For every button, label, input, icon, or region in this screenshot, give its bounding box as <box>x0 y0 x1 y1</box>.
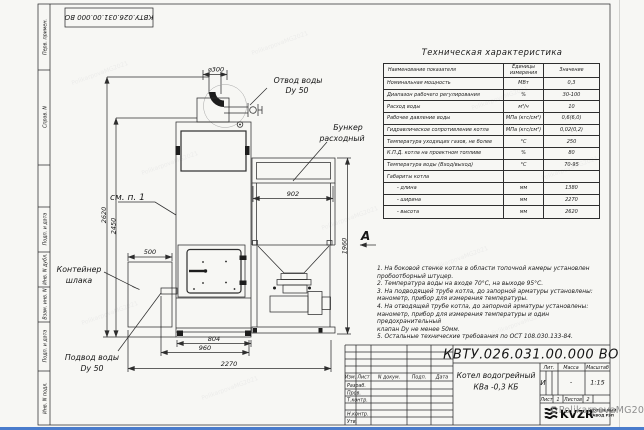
tb-product-name-2: КВа -0,3 КБ <box>474 383 519 392</box>
tech-cell-unit: МПа (кгс/см²) <box>504 113 544 125</box>
tech-cell-value: 30-100 <box>544 90 599 102</box>
door-hinge <box>240 281 247 286</box>
dimensions: ⌀300 500 902 1960 804 960 2270 2620 2450 <box>100 66 351 373</box>
stamp-label: Перв. примен. <box>43 19 49 55</box>
tech-cell-name: Рабочее давление воды <box>384 113 504 125</box>
feeder-motor <box>308 292 322 315</box>
tech-cell-name: - длина <box>384 183 504 195</box>
tb-scale-label: Масштаб <box>586 365 609 371</box>
stamp-label: Инв. N подл. <box>43 382 49 414</box>
tb-col-podp: Подп. <box>412 375 427 381</box>
tech-cell-name: Гидравлическое сопротивление котла <box>384 125 504 137</box>
stamp-label: Справ. N <box>43 106 49 128</box>
label-see-note: см. п. 1 <box>110 193 145 203</box>
border-stamp-column: Перв. примен. Справ. N Подп. и дата Инв.… <box>43 19 49 414</box>
label-water-inlet: Подвод воды <box>65 353 119 362</box>
note-line: пробоотборный штуцер. <box>377 274 609 282</box>
tech-col-header: Значение <box>544 64 599 78</box>
tech-cell-value: 0,02(0,2) <box>544 125 599 137</box>
dim-total-height: 2620 <box>100 207 108 224</box>
door-hinge <box>240 256 247 261</box>
dim-hopper-width: 902 <box>287 190 299 198</box>
chimney <box>107 77 262 128</box>
fuel-hopper <box>252 158 335 333</box>
tb-sheets-value: 2 <box>586 397 589 403</box>
tb-lit-label: Лит. <box>542 365 554 371</box>
tech-cell-value: 2270 <box>544 195 599 207</box>
note-line: 1. На боковой стенке котла в области топ… <box>377 266 609 274</box>
tb-doc-number: КВТУ.026.031.00.000 ВО <box>443 348 619 363</box>
dim-chimney: ⌀300 <box>208 66 224 74</box>
tech-cell-value: 250 <box>544 136 599 148</box>
page-edge-line <box>619 0 620 430</box>
tech-characteristics-table: Наименование показателя Единицы измерени… <box>383 63 600 219</box>
tb-sheet-label: Лист <box>539 397 552 403</box>
water-inlet-stub <box>161 288 177 294</box>
dim-hopper-height: 1960 <box>341 238 349 255</box>
tb-sheet-value: 1 <box>556 397 559 403</box>
tech-cell-unit: МПа (кгс/см²) <box>504 125 544 137</box>
note-line: 2. Температура воды на входе 70°С, на вы… <box>377 281 609 289</box>
note-line: 4. На отводящей трубе котла, до запорной… <box>377 304 609 312</box>
tb-col-izm: Изм. <box>345 375 356 381</box>
tb-row-utv: Утв. <box>347 419 357 425</box>
tb-row-prov: Пров. <box>347 391 361 397</box>
tech-cell-name: Температура воды (Вход/выход) <box>384 160 504 172</box>
tech-cell-name: Номинальная мощность <box>384 78 504 90</box>
label-water-inlet-dy: Dy 50 <box>80 364 103 373</box>
note-line: манометр, прибор для измерения температу… <box>377 312 609 327</box>
flue-elbow <box>209 92 224 107</box>
dim-boiler-width: 804 <box>208 335 220 343</box>
tb-mass-label: Масса <box>563 365 578 371</box>
tb-col-data: Дата <box>435 375 448 381</box>
stamp-label: Взам. инв. N <box>43 288 49 320</box>
note-line: 3. На подводящей трубе котла, до запорно… <box>377 289 609 297</box>
boiler-front-view <box>107 77 335 337</box>
view-a-label: А <box>360 229 370 243</box>
tech-cell-unit: мм <box>504 206 544 218</box>
label-hopper: Бункер <box>333 123 363 132</box>
tb-sheets-label: Листов <box>563 397 582 403</box>
slag-container <box>128 262 172 327</box>
tech-cell-unit: % <box>504 148 544 160</box>
tb-col-list: Лист <box>356 375 369 381</box>
furnace-door <box>178 245 247 297</box>
tech-cell-unit <box>504 171 544 183</box>
note-line: манометр, прибор для измерения температу… <box>377 296 609 304</box>
tech-cell-name: - ширина <box>384 195 504 207</box>
tech-cell-unit: °С <box>504 160 544 172</box>
tb-row-razrab: Разраб. <box>347 383 366 389</box>
tech-cell-unit: °С <box>504 136 544 148</box>
tech-col-header: Наименование показателя <box>384 64 504 78</box>
tb-row-tkontr: Т.контр. <box>347 398 368 404</box>
outlet-valve-icon <box>250 107 257 114</box>
label-water-outlet-dy: Dy 50 <box>285 86 308 95</box>
tech-cell-value: 0,3 <box>544 78 599 90</box>
stamp-label: Инв. N дубл. <box>43 253 49 284</box>
label-hopper-2: расходный <box>318 134 364 143</box>
tech-cell-name: К.П.Д. котла на проектном топливе <box>384 148 504 160</box>
tb-mass-value: - <box>570 379 573 387</box>
tech-cell-value: 2620 <box>544 206 599 218</box>
tech-cell-name: - высота <box>384 206 504 218</box>
tech-cell-name: Габариты котла <box>384 171 504 183</box>
tb-product-name: Котел водогрейный <box>457 371 536 380</box>
stamp-label: Подп. и дата <box>43 213 49 246</box>
tb-col-ndocum: N докум. <box>378 375 400 381</box>
tb-lit-value: И <box>540 379 546 387</box>
dim-base-width: 960 <box>199 344 211 352</box>
screw-feeder <box>270 296 308 312</box>
top-doc-number-box: КВТУ.026.031.00.000 ВО <box>64 8 153 27</box>
top-doc-number: КВТУ.026.031.00.000 ВО <box>64 13 153 21</box>
tech-cell-unit: м³/ч <box>504 101 544 113</box>
hopper-funnel <box>258 246 329 273</box>
blueprint-sheet: { "colors": { "bottom_bar": "#4a7ccc", "… <box>0 0 644 430</box>
tech-cell-unit: мм <box>504 183 544 195</box>
tech-cell-name: Температура уходящих газов, не более <box>384 136 504 148</box>
tech-cell-value: 0,6(6,0) <box>544 113 599 125</box>
tech-cell-value: 1380 <box>544 183 599 195</box>
label-slag-container-2: шлака <box>66 276 93 285</box>
dim-body-height: 2450 <box>110 218 118 235</box>
label-water-outlet: Отвод воды <box>274 76 323 85</box>
dim-slag-width: 500 <box>144 248 156 256</box>
tech-table-title: Техническая характеристика <box>392 47 592 57</box>
tech-cell-unit: мм <box>504 195 544 207</box>
tech-cell-value: 10 <box>544 101 599 113</box>
dim-total-width: 2270 <box>221 360 238 368</box>
tb-row-nkontr: Н.контр. <box>347 412 368 418</box>
boiler-body <box>161 122 251 337</box>
copyright-watermark: ©PolikarpovaMG2021 <box>549 405 644 416</box>
tb-scale-value: 1:15 <box>590 379 605 387</box>
tech-col-header: Единицы измерения <box>504 64 544 78</box>
stamp-label: Подп. и дата <box>43 330 49 363</box>
label-slag-container: Контейнер <box>57 265 102 274</box>
